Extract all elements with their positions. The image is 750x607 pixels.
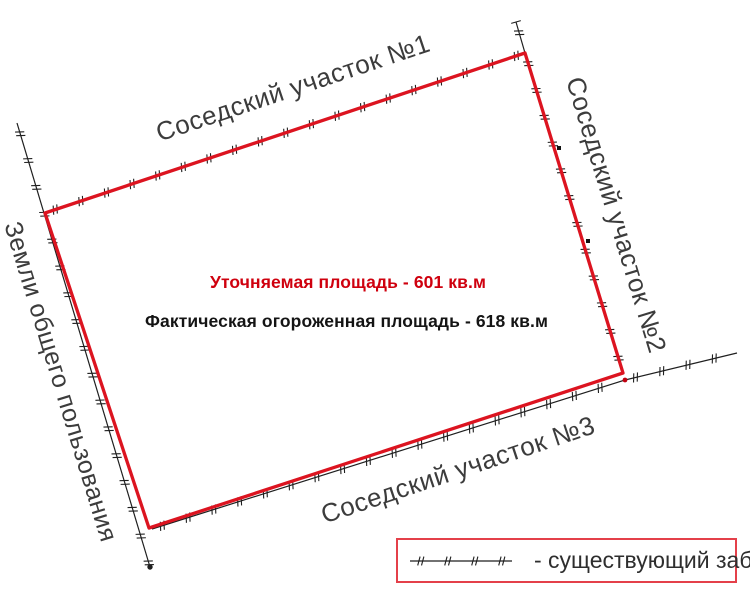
existing-fence-symbol-icon — [408, 552, 520, 570]
fence-bottom-line — [152, 353, 737, 529]
survey-point — [586, 239, 590, 243]
legend-box: - существующий забор — [396, 538, 737, 583]
refined-area-text: Уточняемая площадь - 601 кв.м — [210, 272, 486, 293]
actual-fenced-area-text: Фактическая огороженная площадь - 618 кв… — [145, 311, 548, 332]
plot-plan: Соседский участок №1 Соседский участок №… — [0, 0, 750, 607]
survey-point — [557, 146, 561, 150]
legend-label: - существующий забор — [534, 547, 750, 574]
survey-point — [623, 378, 628, 383]
fence-end-dot — [147, 564, 152, 569]
